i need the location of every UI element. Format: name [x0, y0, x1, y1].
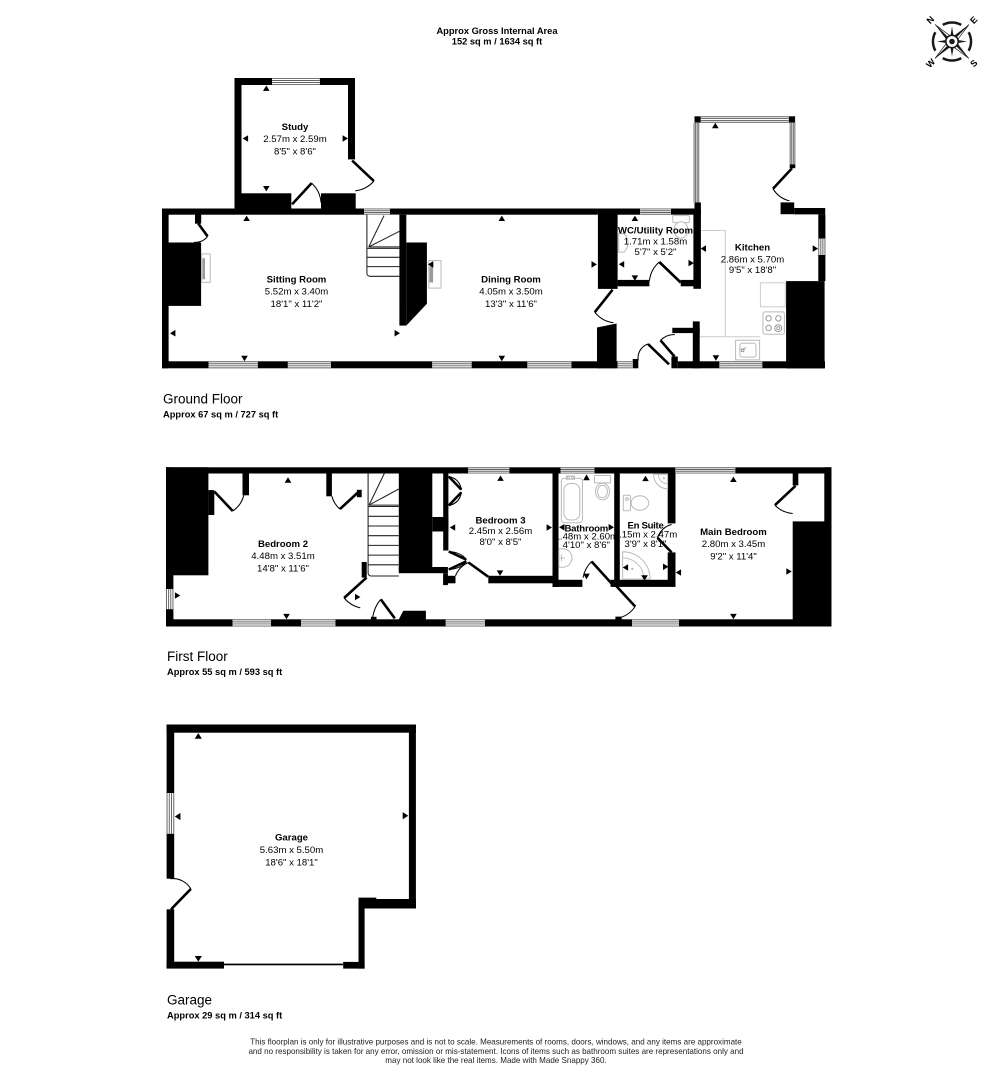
svg-text:and no responsibility is taken: and no responsibility is taken for any e…	[248, 1047, 743, 1056]
svg-text:9'2" x 11'4": 9'2" x 11'4"	[710, 551, 757, 562]
svg-text:14'8" x 11'6": 14'8" x 11'6"	[257, 563, 309, 574]
svg-text:13'3" x 11'6": 13'3" x 11'6"	[485, 299, 537, 310]
svg-text:may not look like the real ite: may not look like the real items. Made w…	[385, 1056, 606, 1065]
svg-text:1.71m x 1.58m: 1.71m x 1.58m	[624, 237, 687, 248]
svg-text:Kitchen: Kitchen	[735, 243, 770, 254]
svg-text:Dining Room: Dining Room	[481, 275, 541, 286]
svg-text:4.05m x 3.50m: 4.05m x 3.50m	[479, 287, 542, 298]
svg-text:2.80m x 3.45m: 2.80m x 3.45m	[702, 539, 765, 550]
svg-text:Sitting Room: Sitting Room	[267, 275, 327, 286]
svg-text:Approx Gross Internal Area: Approx Gross Internal Area	[436, 26, 558, 36]
svg-text:152 sq m / 1634 sq ft: 152 sq m / 1634 sq ft	[452, 37, 542, 47]
svg-text:4.48m x 3.51m: 4.48m x 3.51m	[251, 551, 314, 562]
svg-text:5'7" x 5'2": 5'7" x 5'2"	[635, 247, 677, 258]
svg-text:Garage: Garage	[167, 993, 212, 1008]
svg-text:Bedroom 2: Bedroom 2	[258, 539, 308, 550]
svg-text:3'9" x 8'1": 3'9" x 8'1"	[625, 539, 667, 550]
svg-text:Main Bedroom: Main Bedroom	[700, 527, 767, 538]
svg-text:18'1" x 11'2": 18'1" x 11'2"	[271, 299, 323, 310]
svg-text:9'5" x 18'8": 9'5" x 18'8"	[729, 265, 776, 276]
svg-text:WC/Utility Room: WC/Utility Room	[618, 226, 693, 237]
svg-text:Study: Study	[282, 122, 309, 133]
svg-text:5.63m x 5.50m: 5.63m x 5.50m	[260, 845, 323, 856]
svg-text:First Floor: First Floor	[167, 649, 228, 664]
svg-text:8'5" x 8'6": 8'5" x 8'6"	[274, 146, 316, 157]
svg-text:18'6" x 18'1": 18'6" x 18'1"	[265, 857, 318, 868]
svg-text:2.45m x 2.56m: 2.45m x 2.56m	[469, 526, 532, 537]
svg-text:Approx 55 sq m / 593 sq ft: Approx 55 sq m / 593 sq ft	[167, 667, 282, 677]
svg-text:Approx 67 sq m / 727 sq ft: Approx 67 sq m / 727 sq ft	[163, 410, 278, 420]
svg-text:Garage: Garage	[275, 833, 308, 844]
svg-text:5.52m x 3.40m: 5.52m x 3.40m	[265, 287, 328, 298]
svg-text:8'0" x 8'5": 8'0" x 8'5"	[480, 537, 522, 548]
svg-text:Ground Floor: Ground Floor	[163, 391, 243, 406]
svg-text:2.57m x 2.59m: 2.57m x 2.59m	[263, 134, 326, 145]
svg-text:Approx 29 sq m / 314 sq ft: Approx 29 sq m / 314 sq ft	[167, 1011, 282, 1021]
svg-text:Bedroom 3: Bedroom 3	[475, 515, 525, 526]
svg-text:4'10" x 8'6": 4'10" x 8'6"	[563, 540, 610, 551]
svg-text:This floorplan is only for ill: This floorplan is only for illustrative …	[250, 1037, 742, 1046]
